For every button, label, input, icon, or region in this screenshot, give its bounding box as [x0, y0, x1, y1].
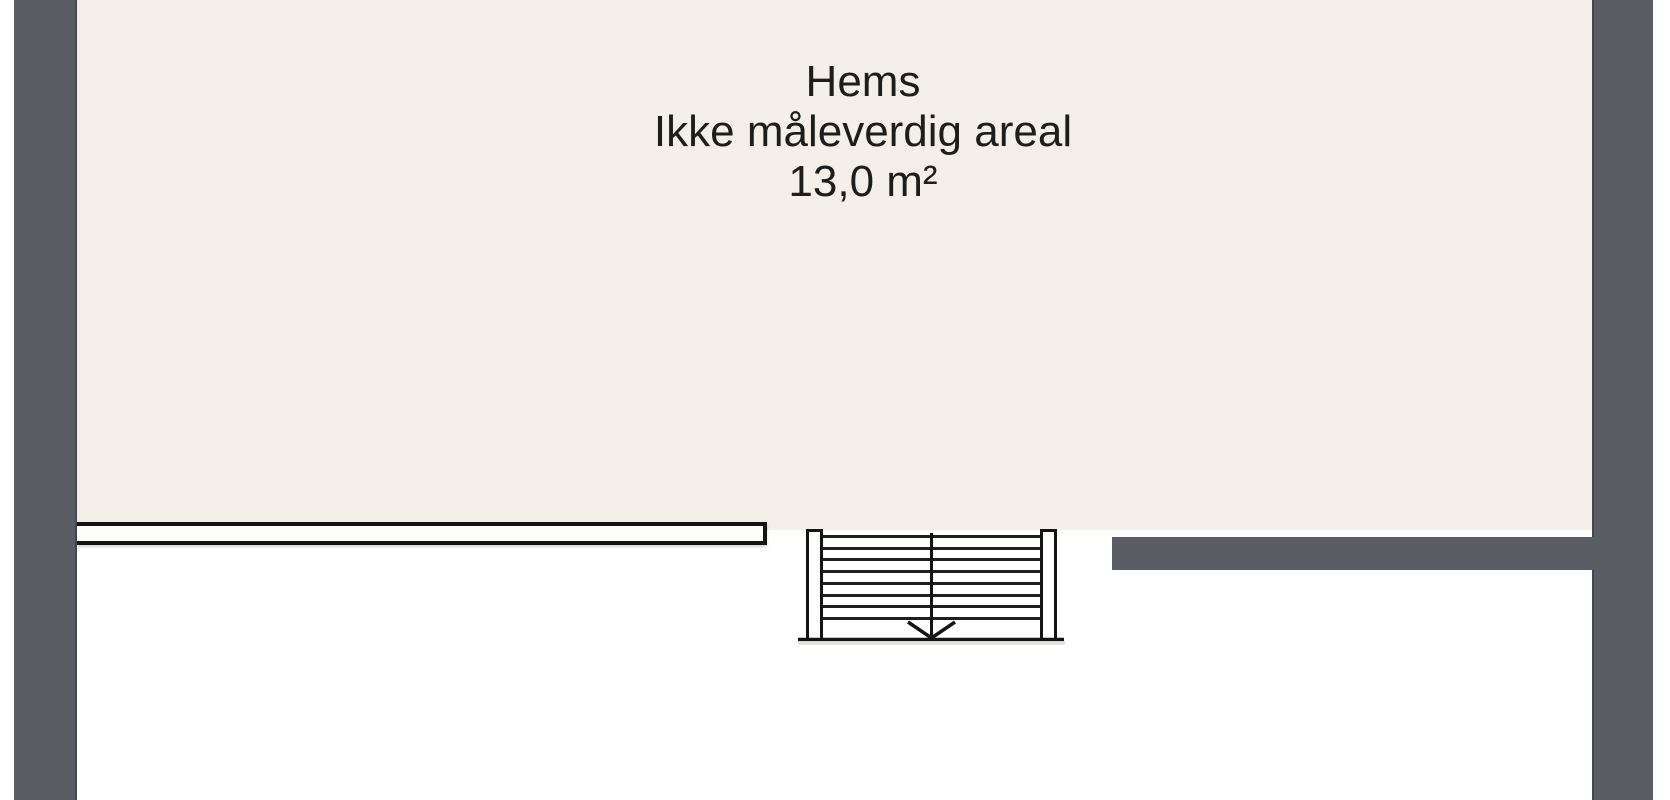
- right-wall: [1592, 0, 1653, 800]
- room-area: 13,0 m²: [654, 157, 1072, 207]
- loft-railing: [77, 522, 767, 545]
- room-name: Hems: [654, 57, 1072, 107]
- stair-shadow: [798, 641, 1065, 645]
- staircase: [806, 529, 1057, 641]
- partition-wall: [1112, 537, 1594, 570]
- left-wall: [14, 0, 77, 800]
- stair-lines: [796, 529, 1067, 644]
- room-note: Ikke måleverdig areal: [654, 107, 1072, 157]
- floor-plan: Hems Ikke måleverdig areal 13,0 m²: [0, 0, 1670, 800]
- room-label: Hems Ikke måleverdig areal 13,0 m²: [654, 57, 1072, 207]
